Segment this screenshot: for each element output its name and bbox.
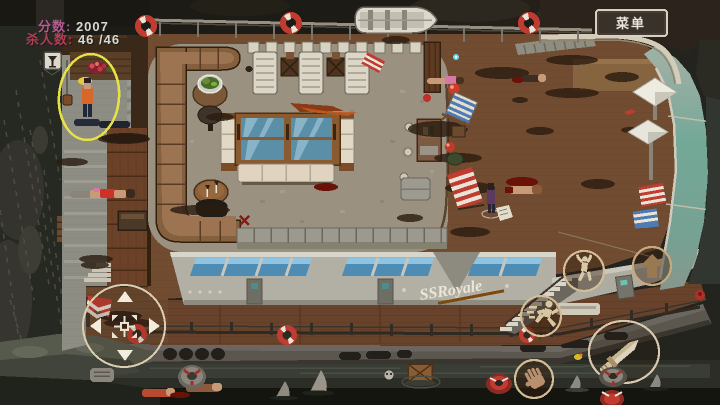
svg-text:菜单: 菜单 — [615, 16, 646, 31]
svg-text:杀人数: 46 /46: 杀人数: 46 /46 — [26, 32, 120, 47]
